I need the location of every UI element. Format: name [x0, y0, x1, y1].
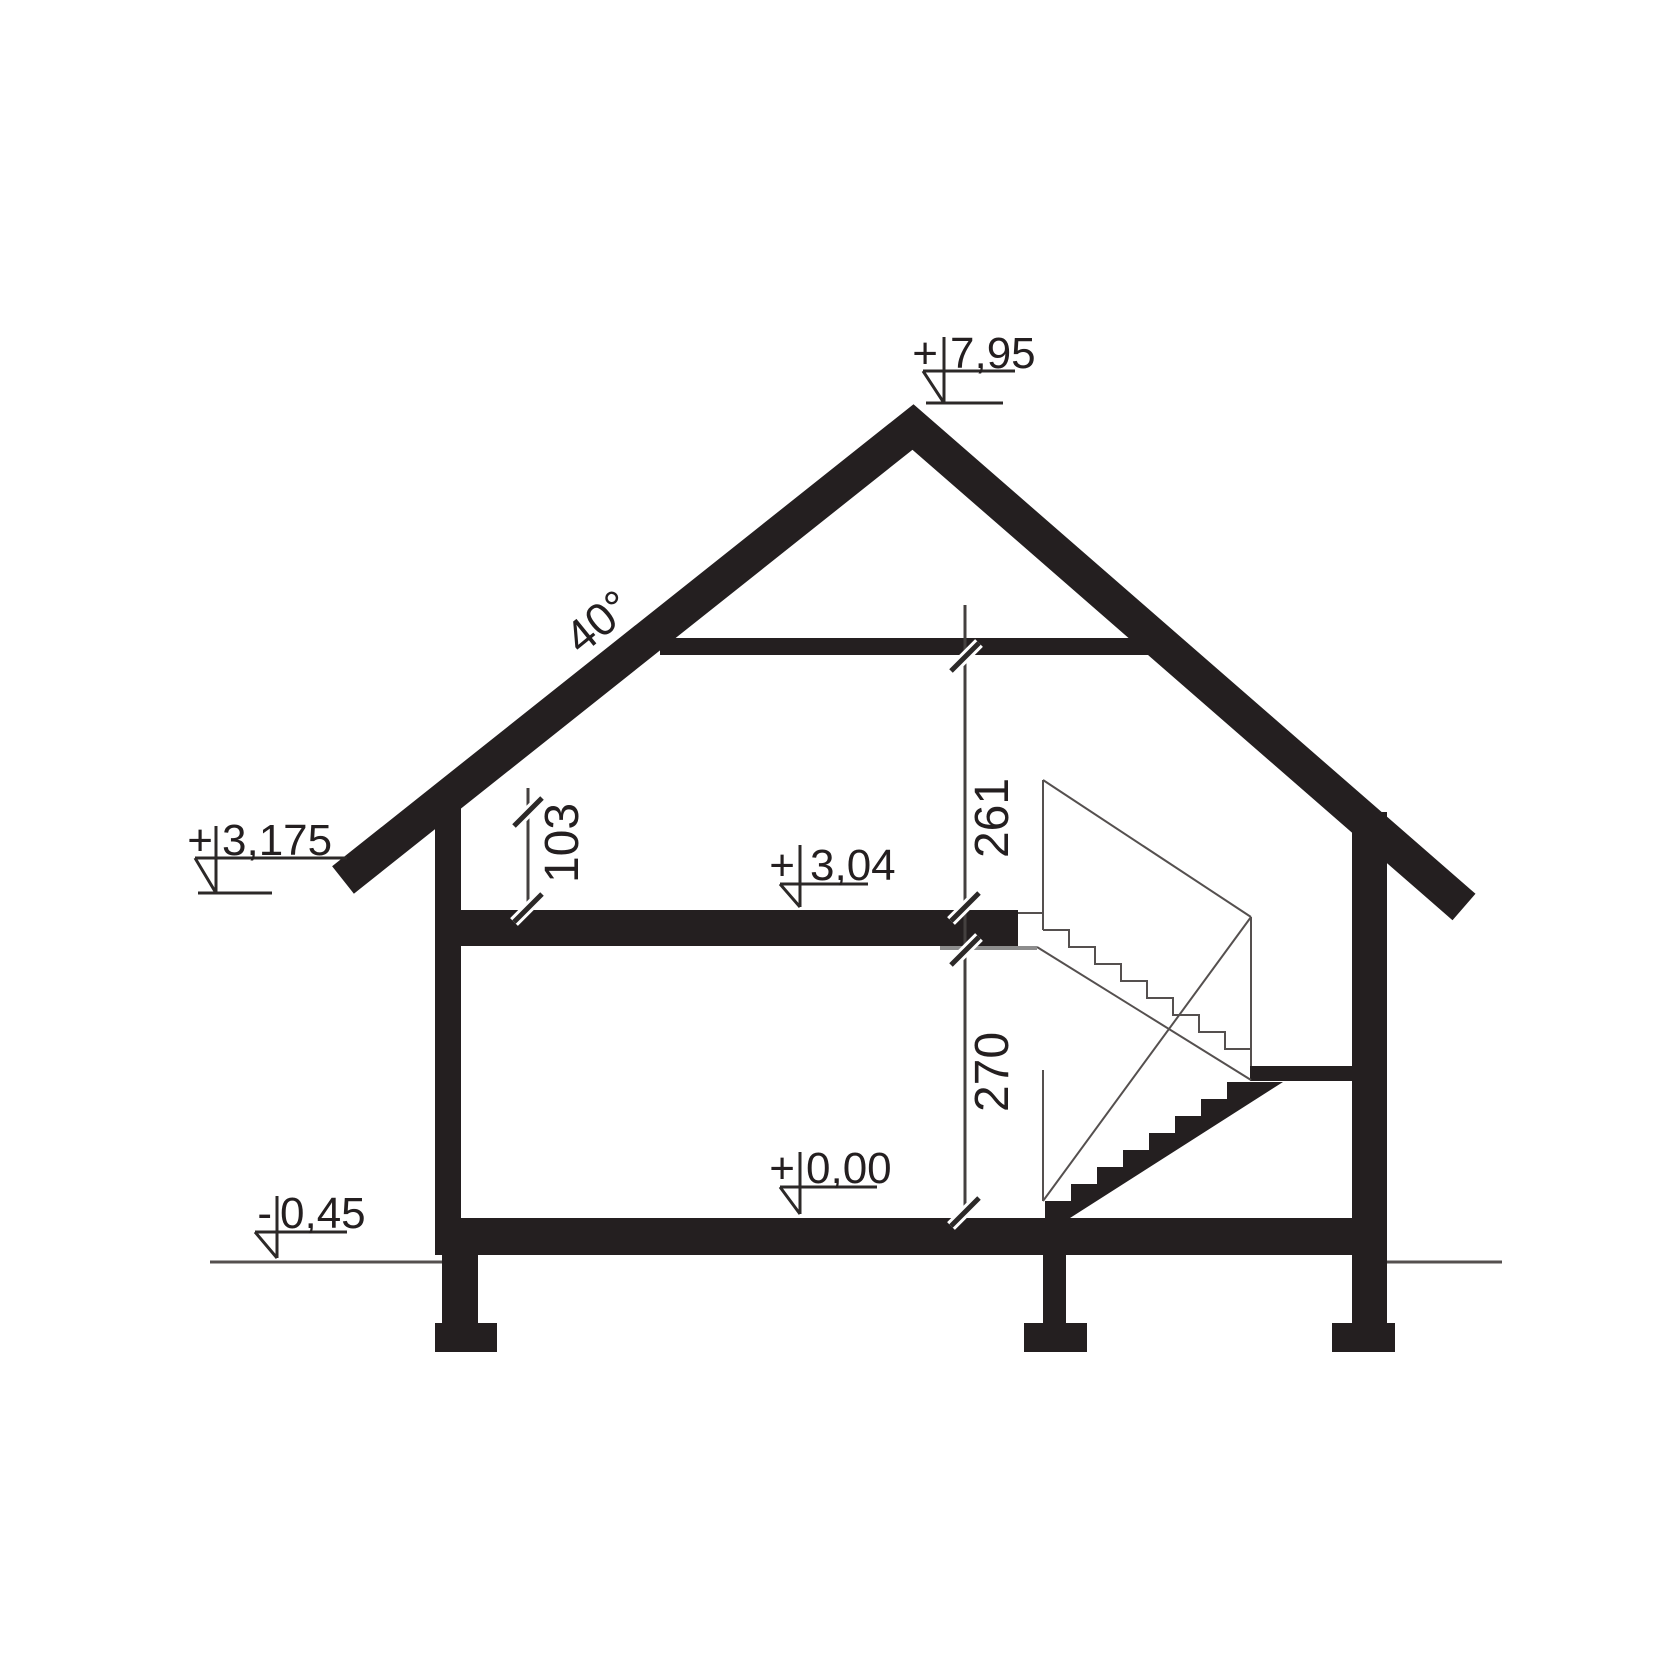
drawing-page: 103 261 270 40° + 7,95 + 3,175 + 3,04 + … — [0, 0, 1680, 1680]
level-marker-ground-floor: + 0,00 — [769, 1144, 891, 1214]
level-marker-ridge: + 7,95 — [912, 329, 1035, 403]
left-footing — [435, 1323, 497, 1352]
collar-beam — [660, 638, 1165, 655]
dim-text-ground-height: 270 — [966, 1032, 1019, 1112]
middle-foundation-wall — [1043, 1250, 1066, 1323]
cross-section-canvas: 103 261 270 40° + 7,95 + 3,175 + 3,04 + … — [0, 0, 1680, 1680]
ground-floor-slab — [435, 1218, 1387, 1255]
dim-text-knee-wall: 103 — [536, 803, 589, 883]
middle-footing — [1024, 1323, 1087, 1352]
level-value: 3,04 — [810, 841, 896, 890]
left-foundation-wall — [442, 1250, 478, 1323]
level-sign: + — [769, 1144, 795, 1193]
right-wall — [1352, 812, 1387, 1255]
dim-text-attic-height: 261 — [966, 778, 1019, 858]
level-value: 3,175 — [222, 816, 332, 865]
stair-break-line-upper — [1043, 780, 1251, 917]
level-marker-attic-floor: + 3,04 — [769, 841, 895, 907]
level-marker-grade: - 0,45 — [255, 1189, 366, 1258]
level-value: 7,95 — [950, 329, 1036, 378]
left-wall — [435, 795, 461, 1255]
level-value: 0,45 — [280, 1189, 366, 1238]
level-sign: + — [912, 329, 938, 378]
level-sign: + — [187, 816, 213, 865]
level-sign: - — [257, 1189, 272, 1238]
stair-landing — [1250, 1066, 1353, 1081]
upper-stair-outline — [1043, 930, 1251, 1066]
level-value: 0,00 — [806, 1144, 892, 1193]
right-footing — [1332, 1323, 1395, 1352]
right-foundation-wall — [1352, 1250, 1387, 1323]
stair-break-line-cross1 — [1037, 947, 1251, 1080]
roof — [343, 427, 1464, 907]
level-marker-group: + 7,95 + 3,175 + 3,04 + 0,00 - 0,45 — [187, 329, 1035, 1258]
structure — [343, 427, 1464, 1352]
level-sign: + — [769, 841, 795, 890]
level-marker-eaves: + 3,175 — [187, 816, 347, 893]
